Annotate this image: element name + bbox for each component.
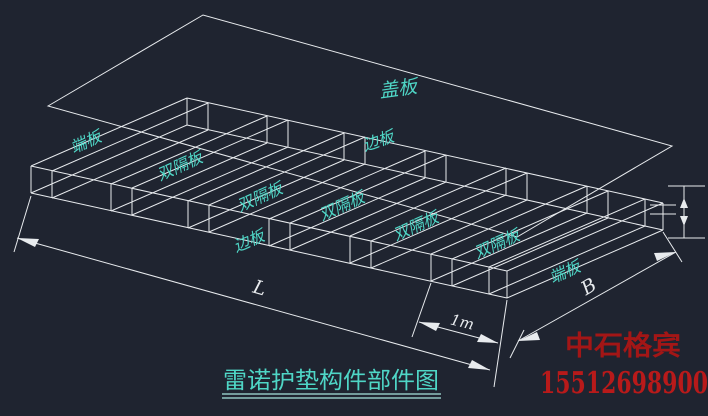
double-partition-label-1: 双隔板 bbox=[154, 147, 207, 185]
drawing-title-block: 雷诺护垫构件部件图 bbox=[222, 368, 441, 398]
side-plate-label-top: 边板 bbox=[360, 126, 398, 155]
double-partition-label-4: 双隔板 bbox=[390, 207, 443, 245]
phone-watermark: 15512698900 bbox=[540, 366, 708, 401]
company-watermark: 中石格宾 bbox=[565, 330, 681, 362]
length-dim-label: L bbox=[250, 276, 269, 301]
double-partition-label-5: 双隔板 bbox=[471, 225, 524, 263]
drawing-title: 雷诺护垫构件部件图 bbox=[223, 368, 439, 394]
cell-dim-label: 1m bbox=[448, 311, 475, 334]
end-plate-label-left: 端板 bbox=[67, 126, 106, 157]
side-plate-label-bottom: 边板 bbox=[230, 225, 269, 256]
dimension-height bbox=[650, 186, 705, 238]
cad-canvas: 盖板 边板 边板 端板 端板 双隔板 双隔板 双隔板 双隔板 双隔板 L B 1… bbox=[0, 0, 708, 416]
wireframe-drawing: 盖板 边板 边板 端板 端板 双隔板 双隔板 双隔板 双隔板 双隔板 L B 1… bbox=[0, 0, 708, 416]
cover-plate-label: 盖板 bbox=[378, 75, 422, 102]
